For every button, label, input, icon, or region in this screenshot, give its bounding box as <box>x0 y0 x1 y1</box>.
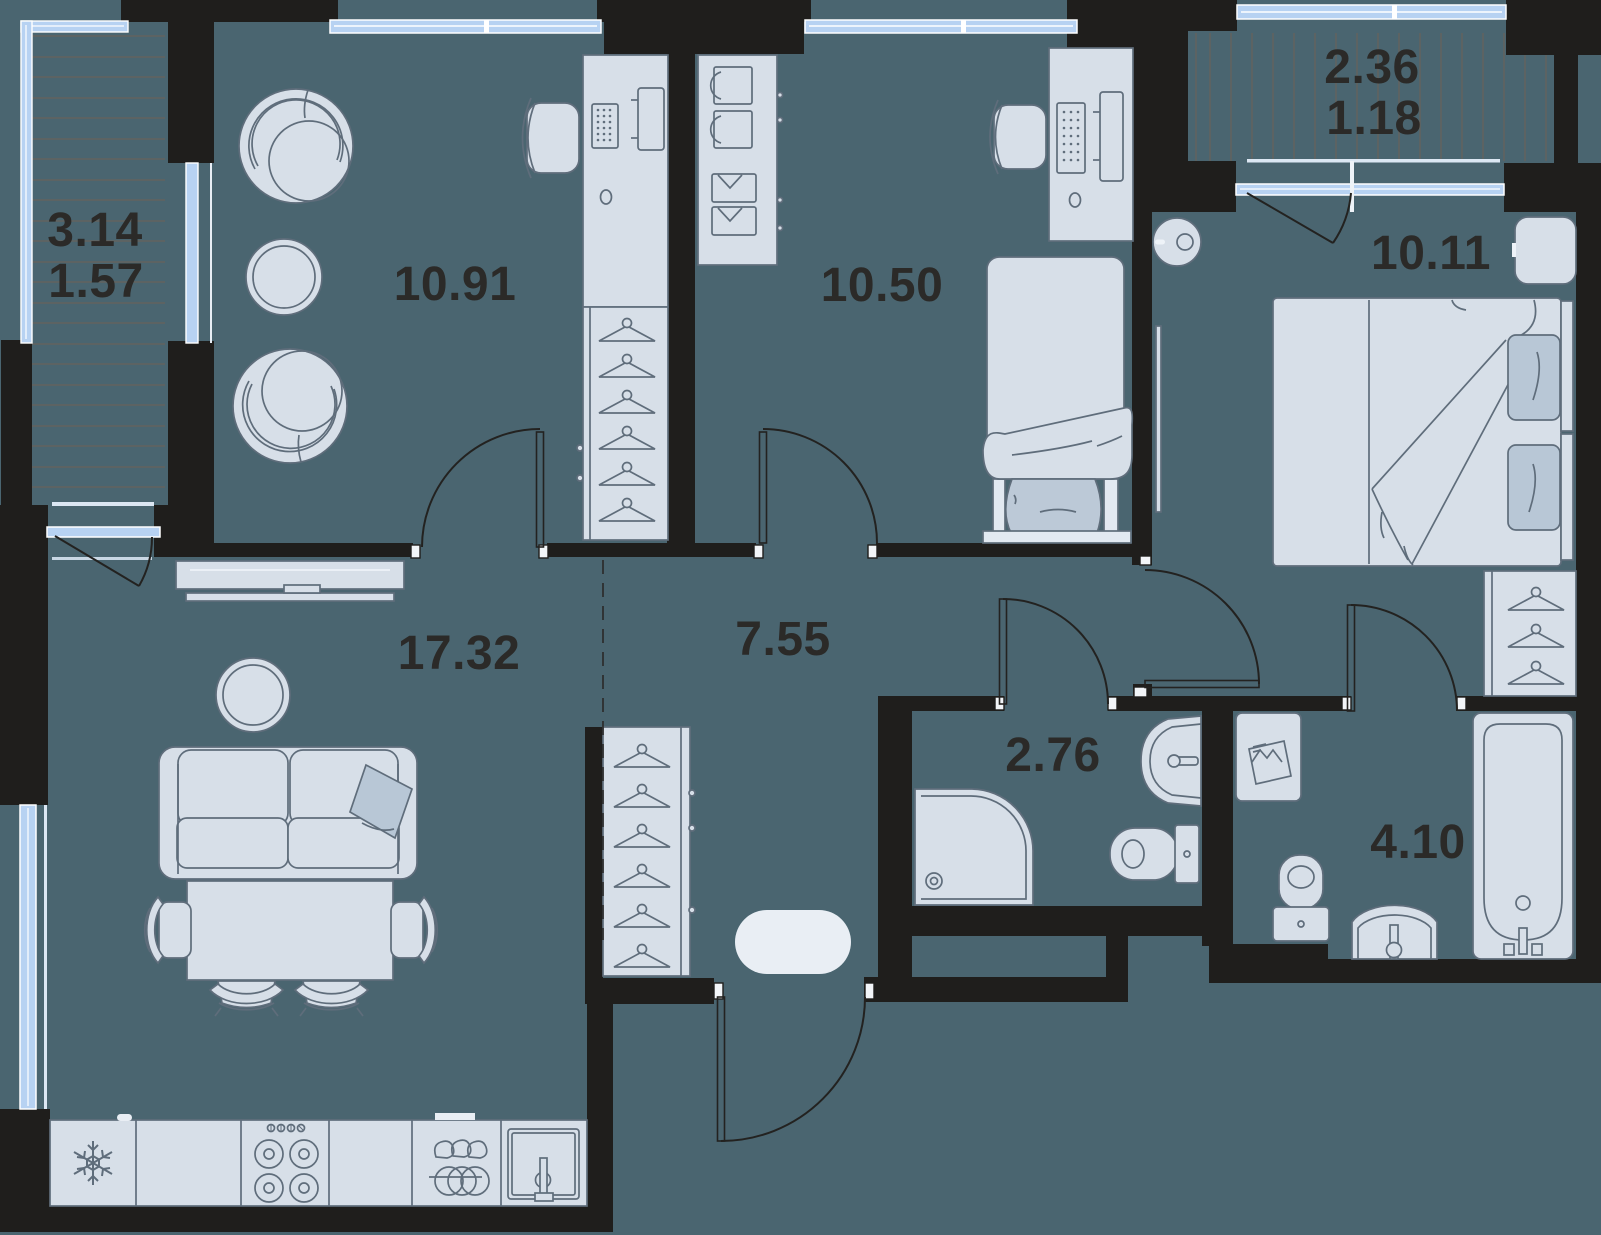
svg-text:7.55: 7.55 <box>735 613 830 666</box>
svg-text:2.36: 2.36 <box>1324 41 1419 94</box>
svg-text:10.11: 10.11 <box>1371 227 1491 280</box>
svg-text:3.14: 3.14 <box>47 204 142 257</box>
svg-text:1.57: 1.57 <box>48 255 143 308</box>
svg-text:17.32: 17.32 <box>398 627 521 680</box>
svg-text:10.91: 10.91 <box>394 258 517 311</box>
svg-text:2.76: 2.76 <box>1005 729 1100 782</box>
svg-text:4.10: 4.10 <box>1370 816 1465 869</box>
svg-text:10.50: 10.50 <box>821 259 944 312</box>
svg-text:1.18: 1.18 <box>1326 92 1421 145</box>
